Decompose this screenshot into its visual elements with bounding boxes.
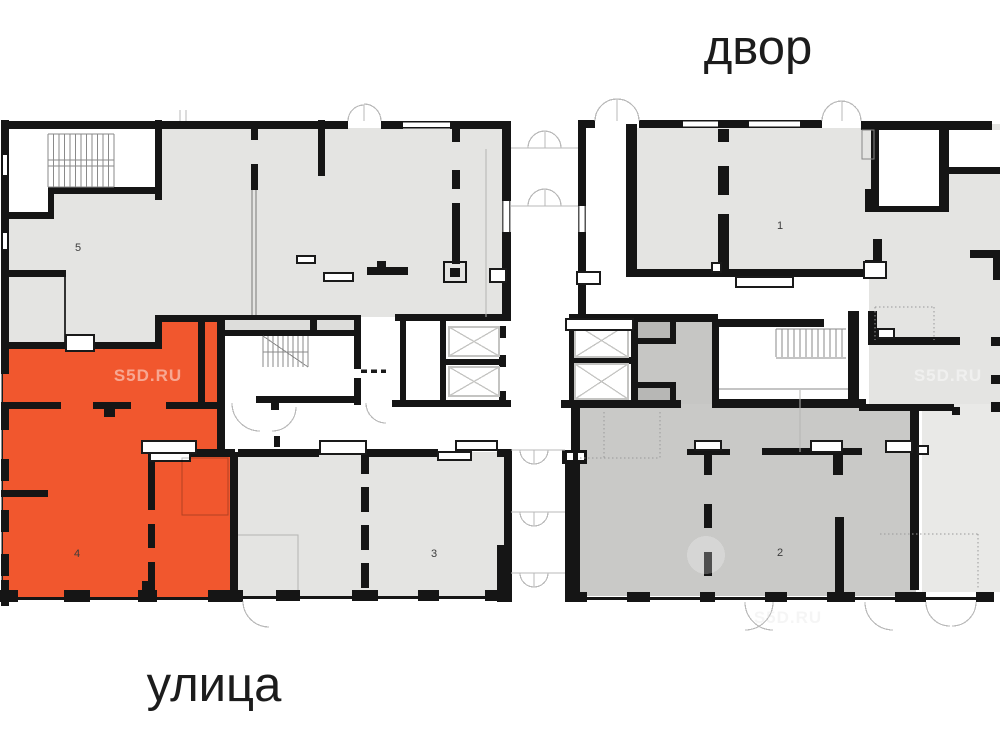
svg-text:двор: двор <box>704 21 813 75</box>
svg-text:улица: улица <box>147 658 282 712</box>
svg-text:3: 3 <box>431 548 437 560</box>
svg-text:S5D.RU: S5D.RU <box>114 366 182 385</box>
svg-text:1: 1 <box>777 220 783 232</box>
svg-text:S5D.RU: S5D.RU <box>754 608 822 627</box>
svg-text:S5D.RU: S5D.RU <box>914 366 982 385</box>
svg-text:5: 5 <box>75 242 81 254</box>
svg-text:2: 2 <box>777 547 783 559</box>
svg-text:4: 4 <box>74 548 80 560</box>
